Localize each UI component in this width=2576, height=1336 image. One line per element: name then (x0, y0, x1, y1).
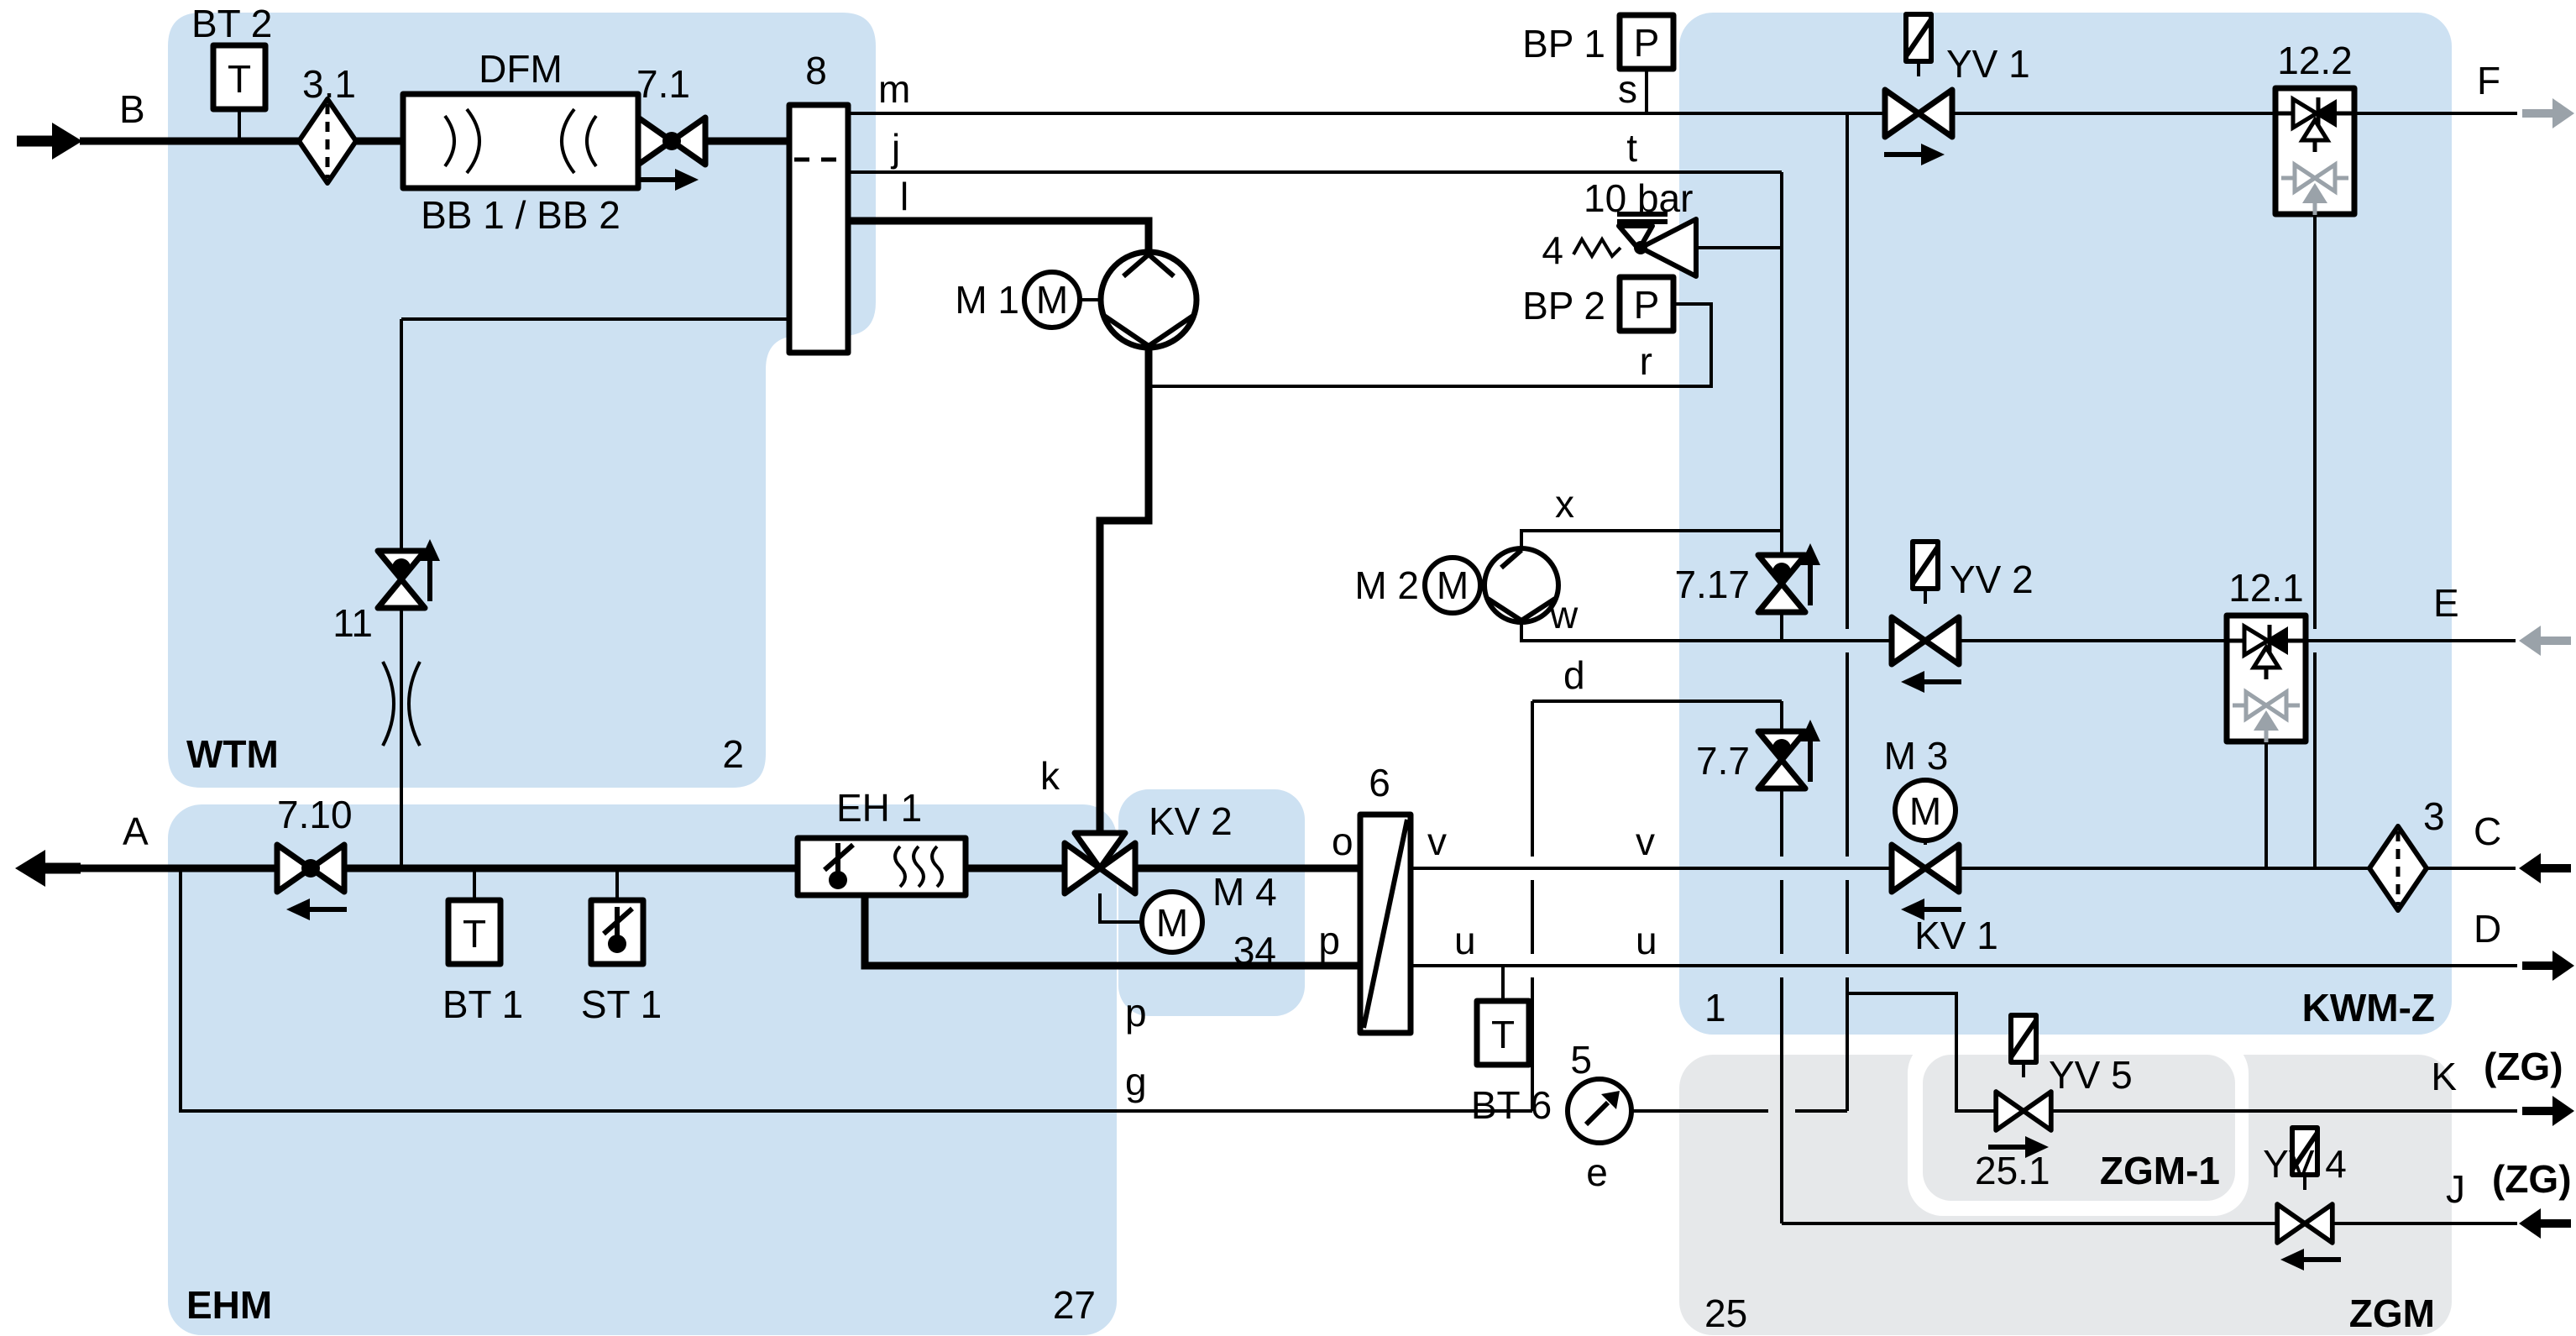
vessel-8-label: 8 (805, 49, 827, 92)
line-x-label: x (1555, 482, 1574, 526)
kv1-label: KV 1 (1914, 914, 1998, 957)
port-j-label: J (2446, 1167, 2465, 1211)
bb-label: BB 1 / BB 2 (421, 193, 620, 237)
bp2-symbol: P (1634, 283, 1660, 327)
port-j-arrow (2519, 1208, 2571, 1239)
pump-m1: M M 1 (955, 252, 1196, 348)
line-p1-label: p (1318, 919, 1340, 962)
port-f-arrow (2522, 98, 2574, 128)
gauge-icon (1568, 1079, 1631, 1143)
m4-motor-symbol: M (1156, 901, 1188, 945)
relief-rating: 10 bar (1584, 176, 1693, 220)
port-e-arrow (2519, 626, 2571, 656)
m4-label: M 4 (1212, 870, 1277, 914)
valve-7-10-label: 7.10 (277, 793, 353, 836)
port-a-arrow (15, 850, 81, 887)
pressure-gauge-5: 5 e (1568, 1038, 1631, 1194)
kv2-label: KV 2 (1149, 799, 1233, 843)
filter-3-1-label: 3.1 (302, 62, 356, 106)
heater-eh1: EH 1 (798, 786, 966, 895)
line-e-label: e (1586, 1150, 1608, 1194)
region-ehm-number: 27 (1053, 1283, 1096, 1327)
region-ehm-label: EHM (186, 1283, 272, 1327)
line-d-label: d (1563, 653, 1585, 697)
temp-sensor-bt6: T BT 6 (1471, 1001, 1552, 1127)
region-ehm (168, 804, 1117, 1335)
port-k-label: K (2431, 1055, 2457, 1098)
bt2-symbol: T (228, 57, 251, 101)
m3-motor-symbol: M (1909, 789, 1941, 833)
port-f-label: F (2477, 59, 2500, 102)
region-zgm1-label: ZGM-1 (2100, 1149, 2220, 1192)
hx-6-label: 6 (1369, 761, 1390, 804)
heat-exchanger-6: 6 (1360, 761, 1411, 1033)
bt6-symbol: T (1491, 1013, 1515, 1056)
port-d-label: D (2474, 907, 2501, 951)
valve-11-label: 11 (332, 601, 373, 645)
gauge-5-label: 5 (1570, 1038, 1592, 1082)
m2-motor-symbol: M (1437, 563, 1469, 607)
pressure-sensor-bp2: P BP 2 (1522, 277, 1673, 331)
region-zgm1-number: 25.1 (1975, 1149, 2050, 1192)
m1-label: M 1 (955, 278, 1019, 322)
pump-icon (1101, 252, 1196, 348)
bp2-label: BP 2 (1522, 284, 1605, 327)
line-w-label: w (1549, 593, 1579, 637)
check-valve-12-1: 12.1 (2227, 566, 2306, 742)
region-zgm-label: ZGM (2349, 1291, 2435, 1335)
relief-label: 4 (1542, 228, 1563, 272)
piping-diagram: T BT 2 3.1 DFM BB 1 / BB 2 7.1 8 M M 1 (0, 0, 2576, 1336)
line-t-label: t (1626, 126, 1637, 170)
bp1-label: BP 1 (1522, 22, 1605, 65)
port-d-arrow (2522, 951, 2574, 981)
line-k-label: k (1040, 754, 1060, 798)
line-v2-label: v (1636, 820, 1655, 863)
line-l-label: l (900, 175, 908, 218)
port-k-arrow (2522, 1096, 2574, 1126)
region-wtm-number: 2 (722, 732, 744, 776)
line-j-label: j (890, 126, 900, 170)
pump-icon (1484, 548, 1558, 622)
line-u2-label: u (1636, 919, 1657, 962)
line-o-label: o (1332, 820, 1353, 863)
port-c-arrow (2519, 853, 2571, 883)
port-j-zg-label: (ZG) (2492, 1157, 2572, 1201)
check-12-1-label: 12.1 (2228, 566, 2304, 610)
valve-7-17-label: 7.17 (1674, 563, 1750, 606)
line-m-label: m (878, 67, 910, 111)
yv1-label: YV 1 (1946, 42, 2030, 86)
region-zgm-number: 25 (1704, 1291, 1747, 1335)
port-a-label: A (123, 809, 149, 853)
bt1-label: BT 1 (442, 982, 523, 1026)
eh1-label: EH 1 (836, 786, 922, 830)
bt6-label: BT 6 (1471, 1083, 1552, 1127)
yv4-label: YV 4 (2263, 1142, 2347, 1186)
line-r-label: r (1640, 339, 1652, 383)
check-12-2-label: 12.2 (2277, 39, 2353, 82)
yv2-label: YV 2 (1950, 558, 2034, 601)
region-kwmz-label: KWM-Z (2302, 986, 2435, 1030)
port-c-label: C (2474, 809, 2501, 853)
port-b-arrow (17, 123, 82, 160)
yv5-label: YV 5 (2049, 1053, 2133, 1097)
bt1-symbol: T (463, 912, 486, 956)
m1-motor-symbol: M (1036, 278, 1068, 322)
valve-7-7-label: 7.7 (1696, 739, 1750, 783)
valve-7-1-label: 7.1 (636, 62, 690, 106)
line-p2-label: p (1125, 991, 1147, 1035)
m3-label: M 3 (1884, 734, 1949, 778)
relief-valve-4: 10 bar 4 (1542, 176, 1696, 276)
pressure-sensor-bp1: P BP 1 (1522, 15, 1673, 69)
line-g-label: g (1125, 1060, 1147, 1103)
port-b-label: B (119, 87, 145, 131)
port-k-zg-label: (ZG) (2484, 1045, 2563, 1088)
m4-number: 34 (1233, 929, 1276, 972)
bt2-label: BT 2 (191, 2, 272, 45)
relief-valve-icon (1573, 214, 1696, 276)
region-kwmz-number: 1 (1704, 986, 1726, 1030)
dfm-label: DFM (479, 47, 563, 91)
bp1-symbol: P (1634, 21, 1660, 65)
check-valve-12-2: 12.2 (2275, 39, 2354, 215)
st1-label: ST 1 (581, 982, 662, 1026)
region-wtm-label: WTM (186, 732, 279, 776)
pump-m2: M M 2 (1354, 548, 1558, 622)
m2-label: M 2 (1354, 563, 1419, 607)
line-v1-label: v (1427, 820, 1447, 863)
filter-3-label: 3 (2423, 794, 2445, 838)
port-e-label: E (2433, 581, 2459, 625)
line-u1-label: u (1454, 919, 1476, 962)
line-s-label: s (1618, 67, 1637, 111)
